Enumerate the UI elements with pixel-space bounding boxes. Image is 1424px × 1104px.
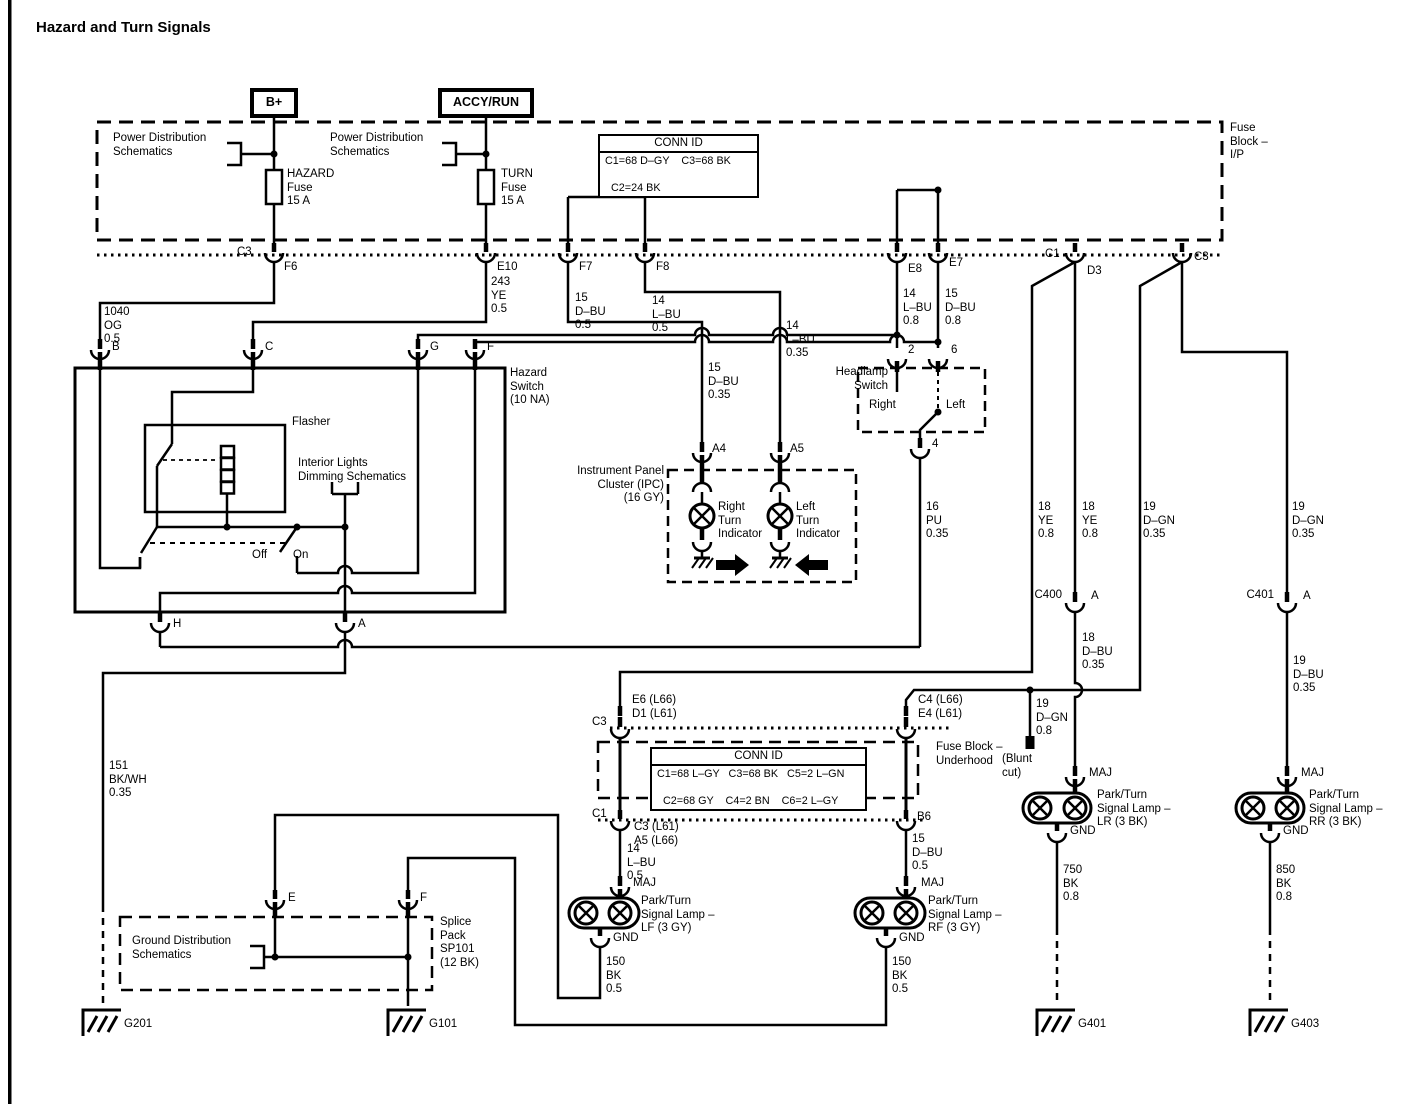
pin-c3-left: C3 bbox=[237, 246, 252, 260]
lr-maj: MAJ bbox=[1089, 767, 1112, 781]
dimming-ref-label: Interior Lights Dimming Schematics bbox=[298, 457, 406, 484]
lf-gnd: GND bbox=[613, 932, 639, 946]
hazard-switch-box bbox=[75, 368, 505, 612]
rf-maj: MAJ bbox=[921, 877, 944, 891]
g403-label: G403 bbox=[1291, 1018, 1319, 1032]
pin-d3: D3 bbox=[1087, 265, 1102, 279]
pin-c3-top: C3 bbox=[592, 716, 607, 730]
wire-151-bkwh: 151 BK/WH 0.35 bbox=[109, 760, 147, 801]
accy-run-box: ACCY/RUN bbox=[438, 88, 534, 118]
wire-lf-gnd: 150 BK 0.5 bbox=[606, 956, 625, 997]
power-dist-ref-2: Power Distribution Schematics bbox=[330, 132, 423, 159]
right-turn-indicator-label: Right Turn Indicator bbox=[718, 501, 762, 542]
lf-maj: MAJ bbox=[633, 877, 656, 891]
pin-c3-right: C3 bbox=[1194, 251, 1209, 265]
lamp-rf bbox=[408, 858, 925, 1025]
ipc-a4-a5-connectors bbox=[693, 442, 789, 504]
wire-14-lbu-035: 14 L–BU 0.35 bbox=[786, 320, 815, 361]
lamp-lf bbox=[275, 815, 639, 998]
conn-id-underhood-row2: C2=68 GY C4=2 BN C6=2 L–GY bbox=[663, 795, 838, 807]
conn-id-underhood-header: CONN ID bbox=[652, 749, 865, 766]
wire-rf-feed: 15 D–BU 0.5 bbox=[912, 833, 943, 874]
pins-c4-e4: C4 (L66) E4 (L61) bbox=[918, 694, 963, 721]
ipc-label: Instrument Panel Cluster (IPC) (16 GY) bbox=[577, 465, 664, 506]
c400-pin-a: A bbox=[1091, 590, 1099, 604]
c401-pin-a: A bbox=[1303, 590, 1311, 604]
rr-gnd: GND bbox=[1283, 825, 1309, 839]
b-plus-box: B+ bbox=[250, 88, 298, 118]
lf-lamp-label: Park/Turn Signal Lamp – LF (3 GY) bbox=[641, 895, 715, 936]
hazard-pin-cups bbox=[91, 350, 484, 359]
turn-fuse-branch bbox=[442, 117, 494, 243]
pin-b6: B6 bbox=[917, 811, 931, 825]
hazard-switch-internals bbox=[100, 370, 475, 611]
pin-e: E bbox=[288, 892, 296, 906]
left-turn-indicator-label: Left Turn Indicator bbox=[796, 501, 840, 542]
hazard-fuse-branch bbox=[227, 117, 282, 243]
ground-symbols bbox=[83, 1010, 1288, 1036]
page-edge-bar bbox=[8, 0, 12, 1104]
pin-a5: A5 bbox=[790, 443, 804, 457]
headlamp-switch-label: Headlamp Switch bbox=[836, 366, 888, 393]
rr-maj: MAJ bbox=[1301, 767, 1324, 781]
fuse-block-underhood-label: Fuse Block – Underhood bbox=[936, 741, 1002, 768]
wire-15-dbu-05: 15 D–BU 0.5 bbox=[575, 292, 606, 333]
hazard-switch-label: Hazard Switch (10 NA) bbox=[510, 367, 550, 408]
lr-gnd: GND bbox=[1070, 825, 1096, 839]
pin-f: F bbox=[487, 341, 494, 355]
pin-f-splice: F bbox=[420, 892, 427, 906]
pin-2: 2 bbox=[908, 344, 914, 358]
headlamp-right: Right bbox=[869, 399, 896, 413]
wire-18-ye-a: 18 YE 0.8 bbox=[1038, 501, 1054, 542]
wire-243-ye: 243 YE 0.5 bbox=[491, 276, 510, 317]
hazard-pin-stubs bbox=[100, 339, 475, 370]
wire-rf-gnd: 150 BK 0.5 bbox=[892, 956, 911, 997]
power-dist-ref-1: Power Distribution Schematics bbox=[113, 132, 206, 159]
pin-f8: F8 bbox=[656, 261, 669, 275]
pin-c: C bbox=[265, 341, 273, 355]
pin-6: 6 bbox=[951, 344, 957, 358]
pin-f7: F7 bbox=[579, 261, 592, 275]
pin-h: H bbox=[173, 618, 181, 632]
hazard-fuse-label: HAZARD Fuse 15 A bbox=[287, 168, 334, 209]
splice-pack-label: Splice Pack SP101 (12 BK) bbox=[440, 916, 479, 970]
wire-15-dbu-08: 15 D–BU 0.8 bbox=[945, 288, 976, 329]
pin-b: B bbox=[112, 341, 120, 355]
g201-label: G201 bbox=[124, 1018, 152, 1032]
off-label: Off bbox=[252, 549, 267, 563]
wire-14-lbu-08: 14 L–BU 0.8 bbox=[903, 288, 932, 329]
pin-e8: E8 bbox=[908, 263, 922, 277]
conn-id-ip: CONN ID C1=68 D–GY C3=68 BK C2=24 BK bbox=[598, 134, 759, 198]
page-title: Hazard and Turn Signals bbox=[36, 20, 211, 37]
feed-wires bbox=[100, 262, 1287, 749]
dimmer-feed-line bbox=[160, 640, 920, 647]
conn-id-underhood-row1: C1=68 L–GY C3=68 BK C5=2 L–GN bbox=[657, 768, 844, 780]
wiring-diagram-page: Hazard and Turn Signals B+ ACCY/RUN Powe… bbox=[0, 0, 1424, 1104]
wire-lr-gnd: 750 BK 0.8 bbox=[1063, 864, 1082, 905]
conn-id-ip-row2: C2=24 BK bbox=[611, 182, 661, 194]
blunt-cut-label: (Blunt cut) bbox=[1002, 753, 1032, 780]
pin-a: A bbox=[358, 618, 366, 632]
pin-4: 4 bbox=[932, 438, 938, 452]
conn-id-underhood: CONN ID C1=68 L–GY C3=68 BK C5=2 L–GN C2… bbox=[650, 747, 867, 811]
wire-19-dgn-b: 19 D–GN 0.35 bbox=[1292, 501, 1324, 542]
flasher-label: Flasher bbox=[292, 416, 330, 430]
conn-id-ip-row1: C1=68 D–GY C3=68 BK bbox=[605, 155, 731, 167]
c401-label: C401 bbox=[1247, 589, 1275, 603]
wire-15-dbu-035: 15 D–BU 0.35 bbox=[708, 362, 739, 403]
g401-label: G401 bbox=[1078, 1018, 1106, 1032]
hazard-output-cups bbox=[151, 623, 354, 632]
pin-c1: C1 bbox=[1045, 248, 1060, 262]
lr-lamp-label: Park/Turn Signal Lamp – LR (3 BK) bbox=[1097, 789, 1171, 830]
pin-g: G bbox=[430, 341, 439, 355]
ground-dist-ref: Ground Distribution Schematics bbox=[132, 935, 231, 962]
rf-lamp-label: Park/Turn Signal Lamp – RF (3 GY) bbox=[928, 895, 1002, 936]
wire-rr-gnd: 850 BK 0.8 bbox=[1276, 864, 1295, 905]
g101-label: G101 bbox=[429, 1018, 457, 1032]
wire-18-ye-b: 18 YE 0.8 bbox=[1082, 501, 1098, 542]
conn-id-ip-header: CONN ID bbox=[600, 136, 757, 153]
fuse-block-ip-label: Fuse Block – I/P bbox=[1230, 122, 1268, 163]
wire-18-dbu: 18 D–BU 0.35 bbox=[1082, 632, 1113, 673]
pin-c1-bottom: C1 bbox=[592, 808, 607, 822]
headlamp-switch-internals bbox=[888, 359, 947, 438]
c400-label: C400 bbox=[1035, 589, 1063, 603]
pin-e7: E7 bbox=[949, 257, 963, 271]
wire-19-dgn-08: 19 D–GN 0.8 bbox=[1036, 698, 1068, 739]
pins-e6-d1: E6 (L66) D1 (L61) bbox=[632, 694, 677, 721]
wire-19-dgn-a: 19 D–GN 0.35 bbox=[1143, 501, 1175, 542]
right-turn-arrow-icon bbox=[716, 554, 749, 576]
wire-16-pu: 16 PU 0.35 bbox=[926, 501, 948, 542]
on-label: On bbox=[293, 549, 308, 563]
pin-f6: F6 bbox=[284, 261, 297, 275]
splice-pack-internals bbox=[250, 890, 417, 1006]
turn-fuse-label: TURN Fuse 15 A bbox=[501, 168, 533, 209]
wire-14-lbu-05: 14 L–BU 0.5 bbox=[652, 295, 681, 336]
flasher-box bbox=[145, 425, 285, 512]
left-turn-arrow-icon bbox=[795, 554, 828, 576]
rf-gnd: GND bbox=[899, 932, 925, 946]
wire-19-dbu: 19 D–BU 0.35 bbox=[1293, 655, 1324, 696]
headlamp-left: Left bbox=[946, 399, 965, 413]
c400-connector bbox=[1066, 592, 1084, 766]
pin-e10: E10 bbox=[497, 261, 517, 275]
rr-lamp-label: Park/Turn Signal Lamp – RR (3 BK) bbox=[1309, 789, 1383, 830]
pin-a4: A4 bbox=[712, 443, 726, 457]
